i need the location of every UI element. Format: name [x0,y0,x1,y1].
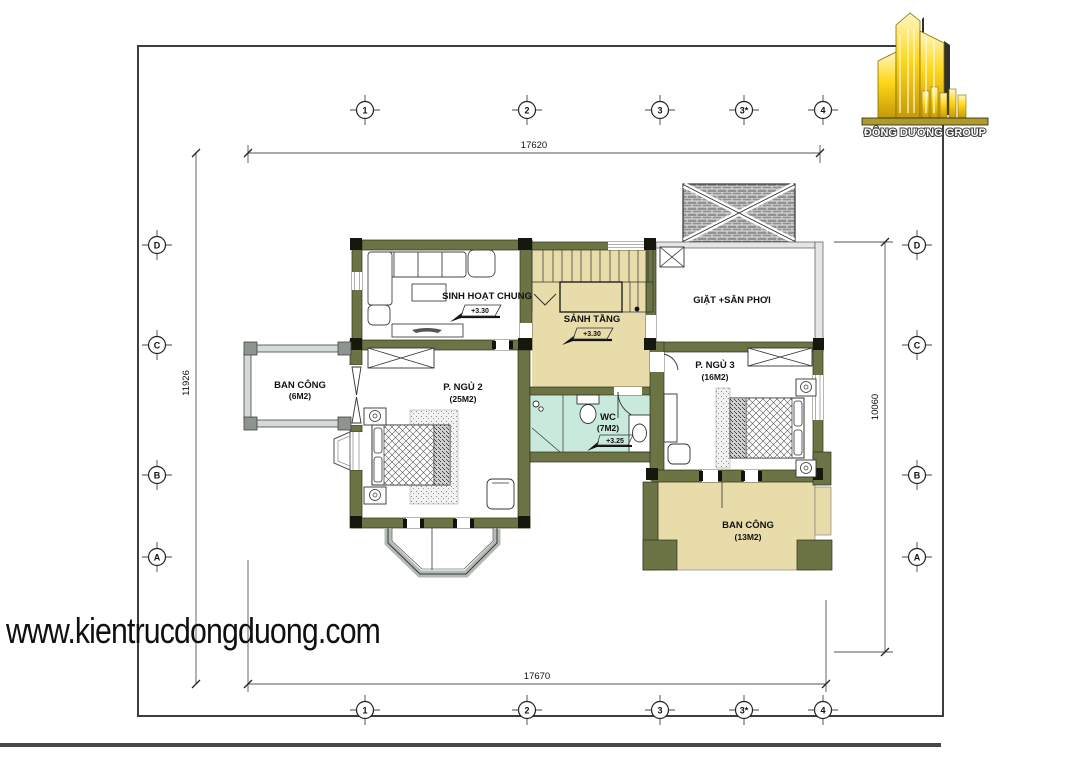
grid-bubble-rowC-right: C [902,330,932,360]
company-logo: ĐÔNG DƯƠNG GROUP [858,5,993,145]
roof-hatch [683,184,795,242]
svg-text:1: 1 [362,706,367,716]
grid-bubble-col3-top: 3 [645,95,675,125]
level-flag-living: +3.30 [450,305,501,322]
armchair-2 [487,479,514,509]
svg-text:D: D [154,241,161,251]
dim-left: 11926 [181,370,192,396]
svg-text:(6M2): (6M2) [289,391,311,401]
bedroom2-furniture [364,348,514,509]
label-wc: WC [600,412,616,423]
grid-bubble-rowB-left: B [142,460,172,490]
dim-top: 17620 [521,140,547,151]
label-hall: SẢNH TẦNG [564,313,620,325]
watermark-url: www.kientrucdongduong.com [6,610,380,652]
grid-bubble-rowD-right: D [902,230,932,260]
grid-bubble-col2-top: 2 [512,95,542,125]
grid-bubble-col3s-top: 3* [729,95,759,125]
svg-text:(13M2): (13M2) [735,532,762,542]
grid-bubble-rowB-right: B [902,460,932,490]
label-laundry: GIẶT +SÂN PHƠI [693,294,771,306]
svg-text:B: B [914,471,921,481]
laundry-window-x [660,247,684,267]
label-living: SINH HOẠT CHUNG [442,291,532,302]
svg-text:4: 4 [820,706,825,716]
svg-text:2: 2 [524,106,529,116]
svg-text:(25M2): (25M2) [450,394,477,404]
label-bedroom2: P. NGỦ 2 [443,381,482,393]
rug-3 [716,388,730,468]
bay-window-left [334,432,350,470]
svg-text:3: 3 [657,106,662,116]
grid-bubble-col3-bottom: 3 [645,695,675,725]
svg-text:D: D [914,241,921,251]
svg-text:C: C [154,341,161,351]
grid-bubble-col1-top: 1 [350,95,380,125]
bedroom3-furniture [664,348,816,477]
grid-bubble-rowC-left: C [142,330,172,360]
chair-3 [668,444,690,464]
label-balcony-right: BAN CÔNG [722,519,774,531]
svg-text:3*: 3* [740,706,749,716]
grid-bubble-rowD-left: D [142,230,172,260]
grid-bubble-rowA-right: A [902,542,932,572]
company-name: ĐÔNG DƯƠNG GROUP [864,126,986,139]
dim-right: 10060 [870,394,881,420]
svg-text:+3.30: +3.30 [471,308,489,315]
label-balcony-left: BAN CÔNG [274,379,326,391]
svg-text:C: C [914,341,921,351]
svg-text:A: A [154,553,161,563]
svg-text:3*: 3* [740,106,749,116]
grid-bubble-rowA-left: A [142,542,172,572]
svg-text:1: 1 [362,106,367,116]
grid-bubble-col4-bottom: 4 [808,695,838,725]
svg-text:(7M2): (7M2) [597,423,619,433]
svg-text:B: B [154,471,161,481]
grid-bubble-col4-top: 4 [808,95,838,125]
svg-text:4: 4 [820,106,825,116]
logo-building-icon: ĐÔNG DƯƠNG GROUP [858,5,993,145]
desk-3 [664,394,677,442]
svg-text:3: 3 [657,706,662,716]
svg-text:2: 2 [524,706,529,716]
svg-text:(16M2): (16M2) [702,372,729,382]
svg-text:A: A [914,553,921,563]
bay-window-bottom [388,528,497,574]
label-bedroom3: P. NGỦ 3 [695,359,734,371]
svg-text:+3.25: +3.25 [606,438,624,445]
dim-bottom: 17670 [524,671,550,682]
grid-bubble-col2-bottom: 2 [512,695,542,725]
svg-text:+3.30: +3.30 [583,331,601,338]
grid-bubble-col3s-bottom: 3* [729,695,759,725]
architectural-drawing-sheet: 17620 17670 11926 10060 1 2 3 3* 4 1 2 3… [0,0,1080,764]
grid-bubble-col1-bottom: 1 [350,695,380,725]
